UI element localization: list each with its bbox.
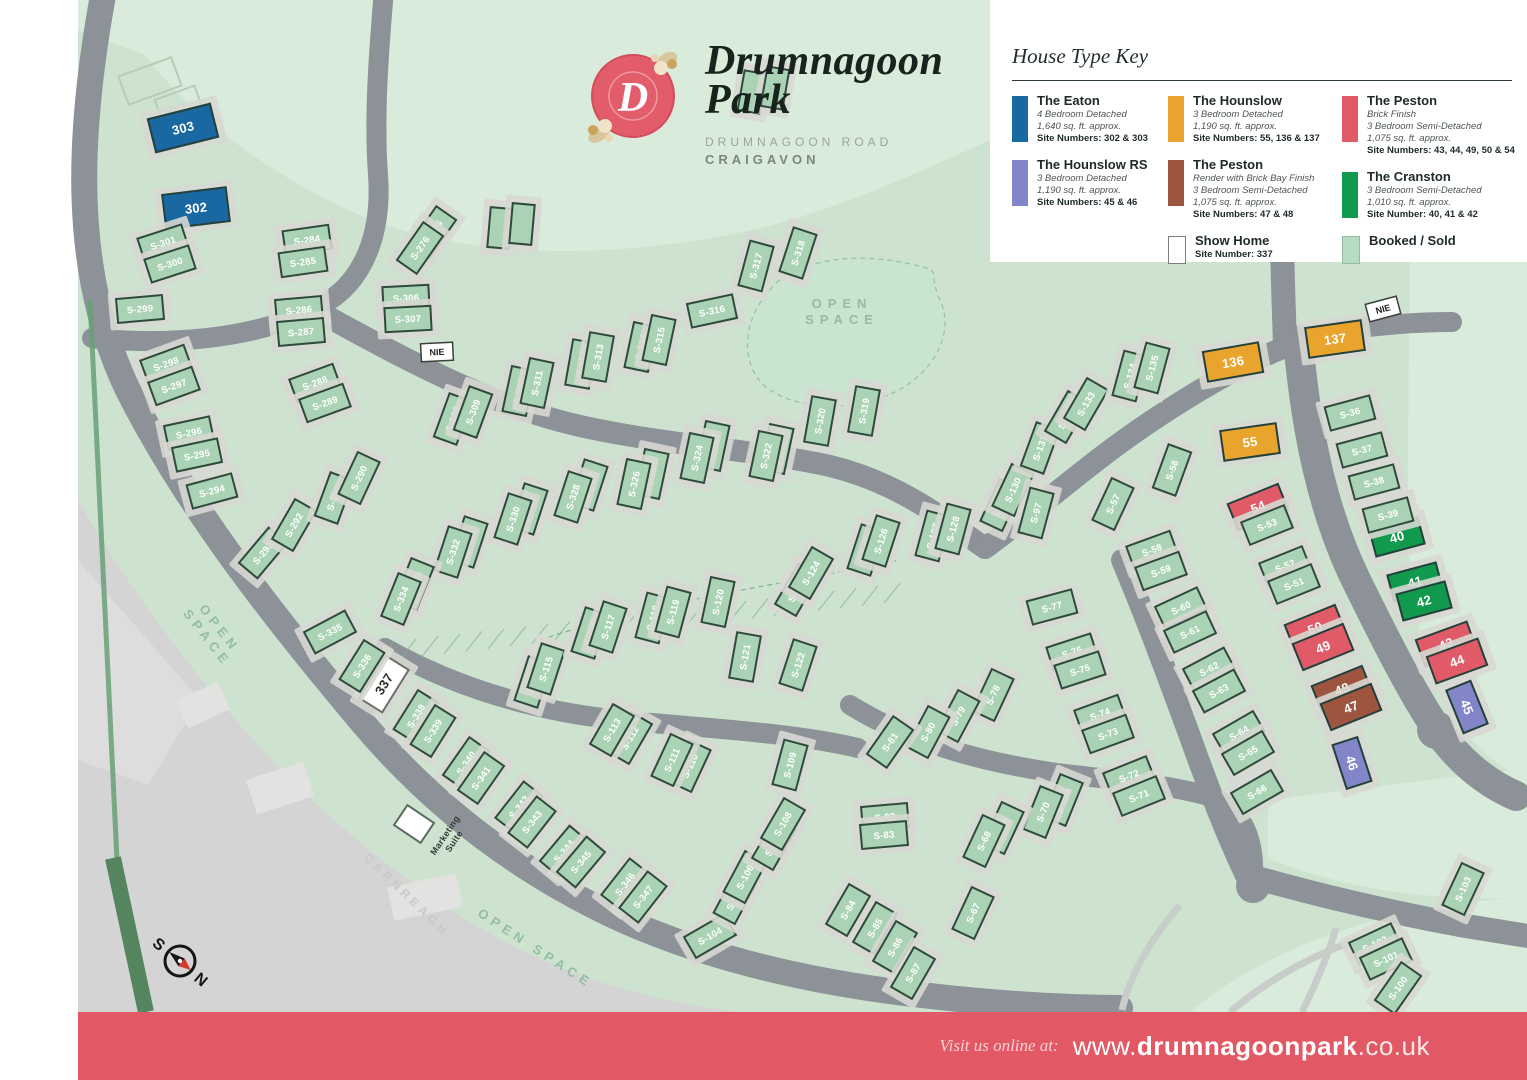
legend-detail: 3 Bedroom Semi-Detached xyxy=(1367,185,1482,197)
website-url[interactable]: www.drumnagoonpark.co.uk xyxy=(1073,1031,1430,1062)
legend-detail: 1,010 sq. ft. approx. xyxy=(1367,197,1482,209)
legend-swatch-cranston xyxy=(1342,172,1358,218)
svg-text:S-307: S-307 xyxy=(395,314,422,326)
legend-site-numbers: Site Numbers: 302 & 303 xyxy=(1037,133,1148,145)
house-type-key-panel: House Type Key The Eaton4 Bedroom Detach… xyxy=(990,0,1527,262)
legend-detail: Brick Finish xyxy=(1367,109,1515,121)
plot-S-83: S-83 xyxy=(851,813,916,856)
legend-column-3: The PestonBrick Finish3 Bedroom Semi-Det… xyxy=(1342,94,1515,264)
site-address-road: DRUMNAGOON ROAD xyxy=(705,135,943,149)
legend-column-1: The Eaton4 Bedroom Detached1,640 sq. ft.… xyxy=(1012,94,1148,209)
legend-detail: 3 Bedroom Detached xyxy=(1193,109,1320,121)
site-title: Drumnagoon Park xyxy=(705,42,943,119)
legend-name: The Cranston xyxy=(1367,170,1482,185)
legend-entry-peston_render: The PestonRender with Brick Bay Finish3 … xyxy=(1168,158,1320,221)
legend-detail: 1,190 sq. ft. approx. xyxy=(1193,121,1320,133)
legend-swatch-show_home xyxy=(1168,236,1186,264)
visit-us-text: Visit us online at: xyxy=(940,1036,1059,1056)
legend-swatch-peston_brick xyxy=(1342,96,1358,142)
plot-S-299: S-299 xyxy=(107,287,172,330)
nie-marker-west: NIE xyxy=(421,342,454,362)
legend-entry-booked: Booked / Sold xyxy=(1342,234,1515,264)
legend-site-numbers: Site Numbers: 47 & 48 xyxy=(1193,209,1314,221)
legend-name: The Peston xyxy=(1367,94,1515,109)
legend-detail: 1,190 sq. ft. approx. xyxy=(1037,185,1148,197)
footer-banner: Visit us online at: www.drumnagoonpark.c… xyxy=(78,1012,1527,1080)
legend-site-numbers: Site Numbers: 43, 44, 49, 50 & 54 xyxy=(1367,145,1515,157)
logo-flowers-top xyxy=(651,48,680,75)
legend-detail: 4 Bedroom Detached xyxy=(1037,109,1148,121)
legend-title: House Type Key xyxy=(1012,44,1148,69)
logo-monogram: D xyxy=(617,75,648,121)
legend-swatch-hounslow xyxy=(1168,96,1184,142)
legend-site-numbers: Site Number: 40, 41 & 42 xyxy=(1367,209,1482,221)
legend-rule xyxy=(1012,80,1512,81)
legend-name: The Eaton xyxy=(1037,94,1148,109)
legend-name: Show Home xyxy=(1195,234,1273,249)
logo-flowers-bottom xyxy=(585,119,613,147)
svg-text:302: 302 xyxy=(184,199,208,217)
legend-name: The Hounslow RS xyxy=(1037,158,1148,173)
legend-column-2: The Hounslow3 Bedroom Detached1,190 sq. … xyxy=(1168,94,1320,264)
legend-entry-hounslow_rs: The Hounslow RS3 Bedroom Detached1,190 s… xyxy=(1012,158,1148,209)
legend-site-numbers: Site Numbers: 45 & 46 xyxy=(1037,197,1148,209)
svg-text:S-83: S-83 xyxy=(873,829,895,842)
legend-entry-peston_brick: The PestonBrick Finish3 Bedroom Semi-Det… xyxy=(1342,94,1515,157)
legend-site-numbers: Site Numbers: 55, 136 & 137 xyxy=(1193,133,1320,145)
legend-swatch-peston_render xyxy=(1168,160,1184,206)
svg-text:55: 55 xyxy=(1242,434,1259,451)
svg-text:137: 137 xyxy=(1323,330,1347,348)
legend-name: Booked / Sold xyxy=(1369,234,1456,249)
plot-S-307: S-307 xyxy=(376,298,440,339)
plot-S-287: S-287 xyxy=(268,310,333,353)
svg-text:NIE: NIE xyxy=(429,347,445,358)
legend-entry-hounslow: The Hounslow3 Bedroom Detached1,190 sq. … xyxy=(1168,94,1320,145)
brand-header: D Drumnagoon Park DRUMNAGOON ROAD CRAIGA… xyxy=(575,34,995,167)
legend-swatch-eaton xyxy=(1012,96,1028,142)
legend-entry-cranston: The Cranston3 Bedroom Semi-Detached1,010… xyxy=(1342,170,1515,221)
svg-text:S-299: S-299 xyxy=(126,303,153,316)
legend-detail: Render with Brick Bay Finish xyxy=(1193,173,1314,185)
legend-detail: 1,075 sq. ft. approx. xyxy=(1193,197,1314,209)
legend-detail: 1,640 sq. ft. approx. xyxy=(1037,121,1148,133)
site-plan-page: 3033021361375554504943444847404142454633… xyxy=(0,0,1527,1080)
legend-name: The Hounslow xyxy=(1193,94,1320,109)
legend-entry-eaton: The Eaton4 Bedroom Detached1,640 sq. ft.… xyxy=(1012,94,1148,145)
legend-entry-show_home: Show HomeSite Number: 337 xyxy=(1168,234,1320,264)
site-address-town: CRAIGAVON xyxy=(705,152,943,167)
legend-swatch-booked xyxy=(1342,236,1360,264)
legend-swatch-hounslow_rs xyxy=(1012,160,1028,206)
plot-unlabeled xyxy=(502,195,543,254)
legend-name: The Peston xyxy=(1193,158,1314,173)
legend-site-numbers: Site Number: 337 xyxy=(1195,249,1273,261)
drumnagoon-park-logo: D xyxy=(575,34,691,164)
map-label: OPENSPACE xyxy=(805,296,879,327)
svg-text:S-287: S-287 xyxy=(287,326,314,339)
svg-text:OPENSPACE: OPENSPACE xyxy=(805,296,879,327)
legend-detail: 3 Bedroom Detached xyxy=(1037,173,1148,185)
legend-detail: 3 Bedroom Semi-Detached xyxy=(1367,121,1515,133)
legend-detail: 3 Bedroom Semi-Detached xyxy=(1193,185,1314,197)
legend-detail: 1,075 sq. ft. approx. xyxy=(1367,133,1515,145)
